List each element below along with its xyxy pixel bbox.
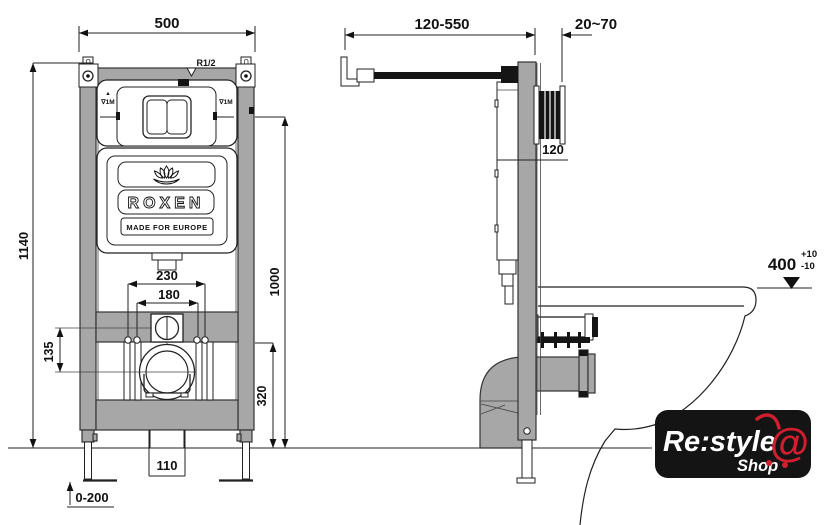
technical-drawing-page: ▲ ∇1M ∇1M R1/2 — [0, 0, 840, 525]
cart-at-icon: @ — [770, 421, 809, 465]
concealed-cistern: ROXEN MADE FOR EUROPE — [97, 148, 237, 270]
inlet-thread-label: R1/2 — [196, 58, 215, 68]
flush-button-small — [147, 100, 167, 134]
flush-button-large — [167, 100, 187, 134]
dim-bowl-height: 400 — [768, 255, 796, 274]
flush-bend-stub — [152, 253, 182, 260]
flush-plate-box-side — [534, 86, 565, 144]
water-inlet-fitting — [151, 314, 183, 348]
flush-pipe — [532, 314, 598, 348]
front-view: ▲ ∇1M ∇1M R1/2 — [16, 15, 285, 507]
adjustable-foot-side — [522, 440, 532, 478]
dim-tolerance-minus: -10 — [801, 261, 815, 272]
wall-anchor-right — [236, 57, 255, 87]
dim-plate-depth: 20~70 — [575, 16, 617, 33]
cart-wheel-icon — [766, 460, 772, 466]
dim-frame-height: 1140 — [16, 232, 31, 260]
dim-bolt-inner: 180 — [158, 287, 180, 302]
waste-elbow — [480, 357, 523, 448]
dim-tank-depth: 120 — [542, 142, 564, 157]
one-meter-mark-right: ∇1M — [218, 98, 232, 106]
wall-support-bracket — [341, 57, 518, 86]
dim-inlet-drop: 135 — [42, 342, 56, 363]
one-meter-mark-left: ∇1M — [100, 98, 114, 106]
dim-waste-pipe: 110 — [157, 458, 178, 473]
dim-bolt-outer: 230 — [156, 268, 178, 283]
installation-frame-drawing: ▲ ∇1M ∇1M R1/2 — [0, 0, 840, 525]
flush-plate-unit: ▲ ∇1M ∇1M — [97, 80, 254, 146]
fixing-bolt-hole — [125, 337, 131, 343]
cistern-side — [495, 82, 518, 304]
dim-frame-width: 500 — [154, 15, 179, 32]
datum-triangle-icon — [783, 277, 800, 289]
dim-foot-range: 0-200 — [75, 490, 108, 505]
restyle-shop-logo: Re:style Shop @ — [655, 410, 811, 478]
fixing-bolt-hole — [134, 337, 140, 343]
cart-wheel-icon — [782, 462, 788, 468]
fixing-bolt-hole — [202, 337, 208, 343]
brand-tagline: MADE FOR EUROPE — [126, 223, 207, 232]
dim-tolerance-plus: +10 — [801, 249, 817, 260]
dim-meter-height: 1000 — [267, 268, 282, 297]
brand-name: ROXEN — [128, 195, 205, 212]
adjustable-foot-right — [219, 430, 253, 481]
side-view-dimensions: 120-550 20~70 120 400 +10 -10 — [345, 16, 817, 289]
adjustable-foot-left — [82, 430, 117, 481]
wall-anchor-left — [79, 57, 98, 87]
fixing-bolt-hole — [194, 337, 200, 343]
waste-pipe-stub — [150, 430, 184, 448]
logo-name: Re:style — [663, 426, 776, 458]
dim-drain-offset: 320 — [255, 386, 269, 407]
level-arrow-icon: ▲ — [105, 91, 110, 97]
dim-bracket-range: 120-550 — [414, 16, 469, 33]
